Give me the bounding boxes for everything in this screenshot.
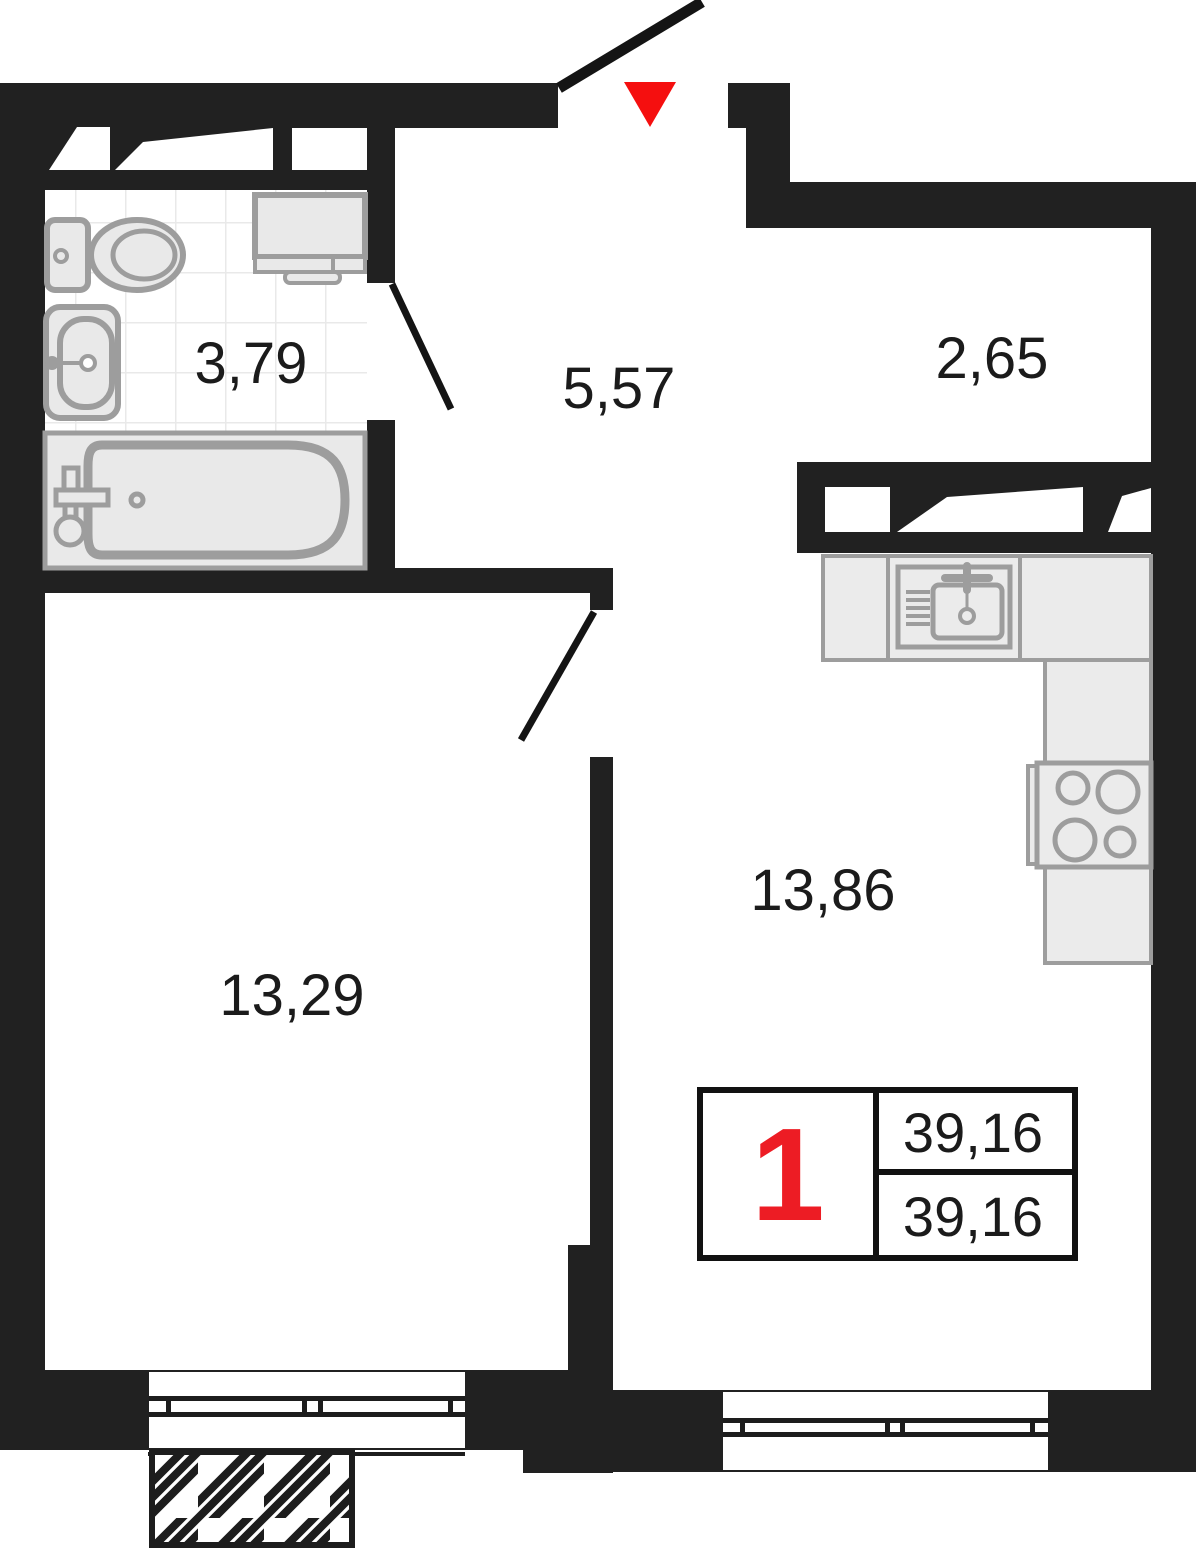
- washer-door: [285, 272, 340, 283]
- window-mullion: [1030, 1418, 1035, 1437]
- stamp-living-area: 39,16: [903, 1185, 1043, 1248]
- bathroom-area-label: 3,79: [195, 331, 308, 396]
- window-mullion: [166, 1396, 171, 1417]
- bathtub-faucet-knob: [56, 517, 84, 545]
- window-mullion: [740, 1418, 745, 1437]
- window-right: [723, 1392, 1048, 1470]
- balcony-hatch: [152, 1452, 352, 1545]
- wall-segment: [746, 128, 790, 182]
- wall-segment: [590, 757, 613, 1245]
- hallway-area-label: 5,57: [563, 356, 676, 421]
- wall-segment: [568, 1245, 613, 1390]
- apartment-stamp: 1 39,16 39,16: [700, 1090, 1075, 1258]
- toilet-flush-button: [55, 250, 67, 262]
- washer-panel: [255, 257, 365, 272]
- wall-segment: [0, 83, 45, 1450]
- kitchen-counter-corner: [1020, 556, 1151, 660]
- sink-drain: [81, 356, 95, 370]
- vent-shaft-opening: [292, 128, 367, 170]
- entrance-door-leaf: [559, 2, 702, 88]
- window-mullion: [318, 1396, 323, 1417]
- hallway-floor: [395, 128, 746, 568]
- bathtub-icon: [45, 433, 365, 568]
- loggia-area-label: 2,65: [936, 326, 1049, 391]
- wall-segment: [590, 593, 613, 610]
- window-left: [149, 1372, 465, 1448]
- stove-icon: [1028, 763, 1151, 867]
- kitchen-area-label: 13,86: [750, 858, 895, 923]
- wall-segment: [0, 568, 613, 593]
- kitchen-sink-drain: [960, 609, 974, 623]
- stamp-rooms-count: 1: [751, 1101, 824, 1248]
- floor-plan: 3,79 5,57 2,65 13,86 13,29 1 39,16 39,16: [0, 0, 1196, 1551]
- window-mullion: [900, 1418, 905, 1437]
- wall-segment: [746, 182, 1196, 228]
- floor-plan-canvas: 3,79 5,57 2,65 13,86 13,29 1 39,16 39,16: [0, 0, 1196, 1551]
- washer-body: [255, 195, 365, 257]
- wall-segment: [1151, 228, 1196, 1472]
- window-mullion: [302, 1396, 307, 1417]
- toilet-icon: [47, 220, 183, 290]
- wall-segment: [728, 83, 790, 128]
- room-area-label: 13,29: [219, 963, 364, 1028]
- window-mullion: [885, 1418, 890, 1437]
- window-mullion: [448, 1396, 453, 1417]
- wall-segment: [367, 420, 395, 568]
- wall-segment: [367, 190, 395, 283]
- wall-segment: [523, 1450, 613, 1473]
- washing-machine-icon: [255, 195, 365, 283]
- kitchen-counter-section: [823, 556, 888, 660]
- vent-shaft-opening: [825, 487, 890, 532]
- stamp-total-area: 39,16: [903, 1101, 1043, 1164]
- sink-icon: [45, 307, 118, 418]
- entrance-marker-icon: [624, 82, 676, 127]
